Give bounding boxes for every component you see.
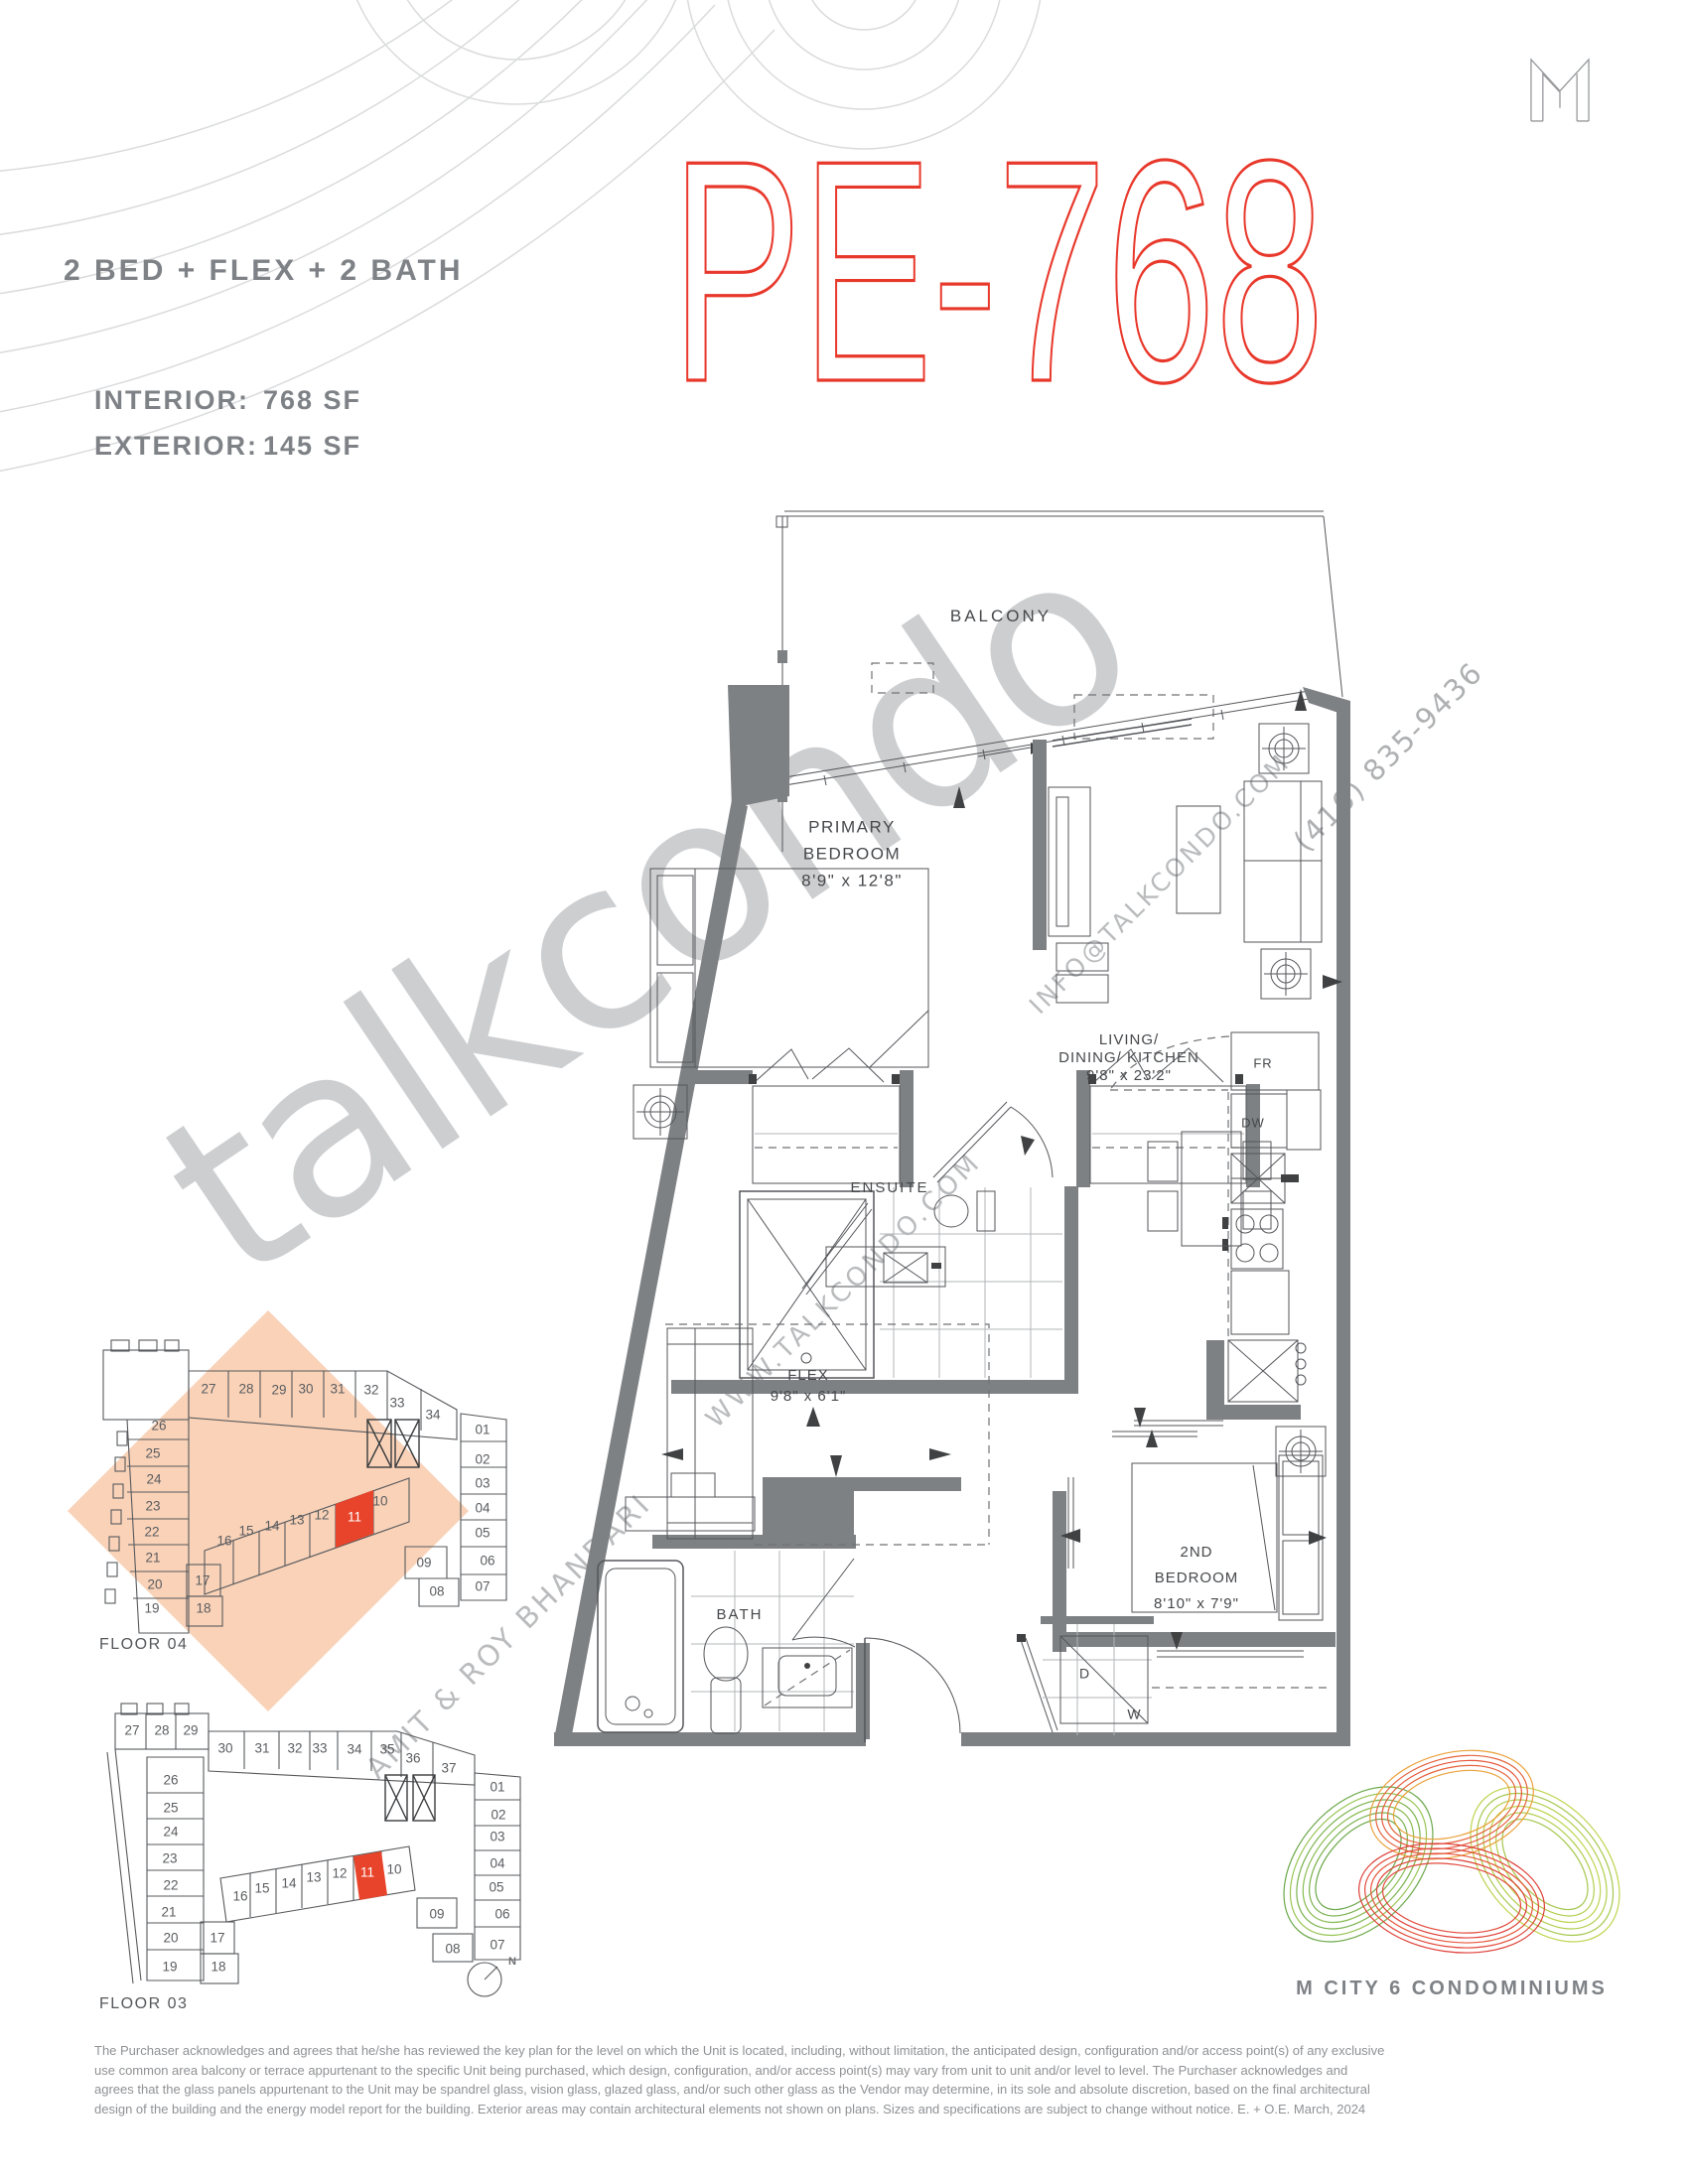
keyplan-floor03-label: FLOOR 03 [99, 1995, 188, 2013]
area-specs: INTERIOR:768 SF EXTERIOR:145 SF [94, 377, 361, 469]
interior-value: 768 SF [263, 385, 361, 415]
entry-door [865, 1634, 1057, 1742]
keyplan-floor04-label: FLOOR 04 [99, 1636, 188, 1654]
mcity-spirograph-logo [1254, 1733, 1649, 1971]
compass-north-label: N [508, 1956, 516, 1968]
floorplan-page: { "title": { "unit_name": "PE-768", "uni… [0, 0, 1688, 2184]
keyplan-floor-03 [107, 1704, 520, 1996]
interior-label: INTERIOR: [94, 377, 263, 423]
m-logo-icon [1531, 60, 1589, 121]
project-brand: M CITY 6 CONDOMINIUMS [1271, 1978, 1632, 2000]
unit-type-label: 2 BED + FLEX + 2 BATH [64, 254, 464, 288]
balcony-outline [776, 511, 1342, 852]
exterior-area: EXTERIOR:145 SF [94, 423, 361, 469]
bath-fixtures [598, 1551, 855, 1733]
interior-area: INTERIOR:768 SF [94, 377, 361, 423]
legal-disclaimer: The Purchaser acknowledges and agrees th… [94, 2041, 1604, 2118]
kitchen-fixtures [1110, 1032, 1321, 1394]
closets [749, 1048, 1246, 1183]
unit-name-title: PE-768 [671, 123, 1325, 421]
exterior-label: EXTERIOR: [94, 423, 263, 469]
ensuite-fixtures [740, 1187, 1062, 1378]
north-compass-icon [468, 1963, 501, 1996]
unit-plan [554, 511, 1350, 1746]
window-wall [743, 691, 1309, 792]
exterior-value: 145 SF [263, 431, 361, 461]
